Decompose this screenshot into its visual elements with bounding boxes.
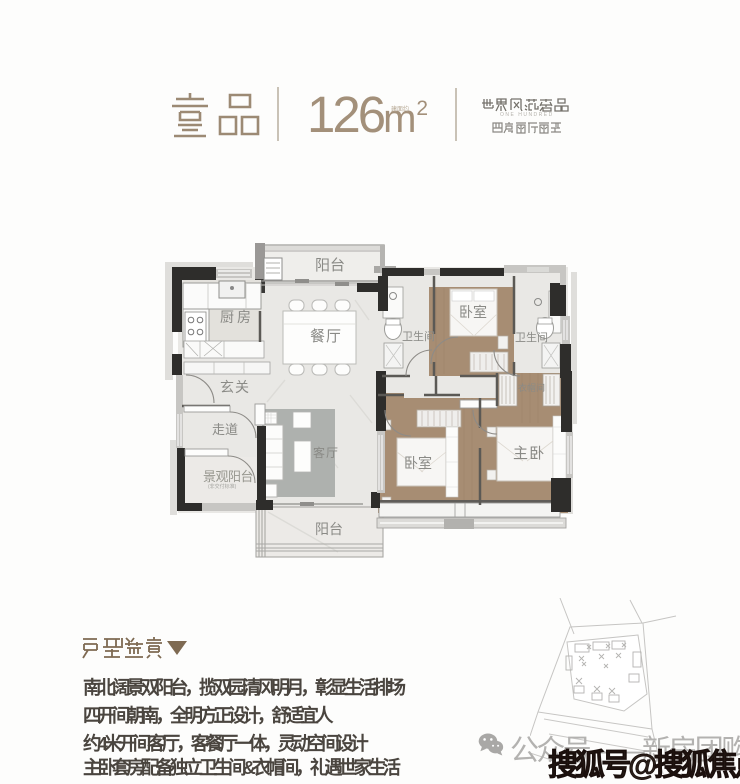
svg-text:阳台: 阳台 [315,257,345,274]
svg-text:厨房: 厨房 [220,309,254,325]
svg-text:走道: 走道 [212,422,238,437]
svg-text:衣帽间: 衣帽间 [518,382,545,393]
svg-text:卫生间: 卫生间 [402,329,435,343]
svg-text:(非交付标准): (非交付标准) [208,483,237,490]
svg-text:主卧: 主卧 [513,445,545,462]
svg-text:玄关: 玄关 [220,379,250,395]
svg-text:景观阳台: 景观阳台 [203,469,254,484]
svg-text:餐厅: 餐厅 [310,328,342,345]
svg-text:卧室: 卧室 [404,455,432,471]
svg-text:卧室: 卧室 [459,304,487,320]
svg-text:客厅: 客厅 [313,445,339,460]
svg-text:阳台: 阳台 [315,521,343,537]
svg-text:卫生间: 卫生间 [515,330,548,344]
